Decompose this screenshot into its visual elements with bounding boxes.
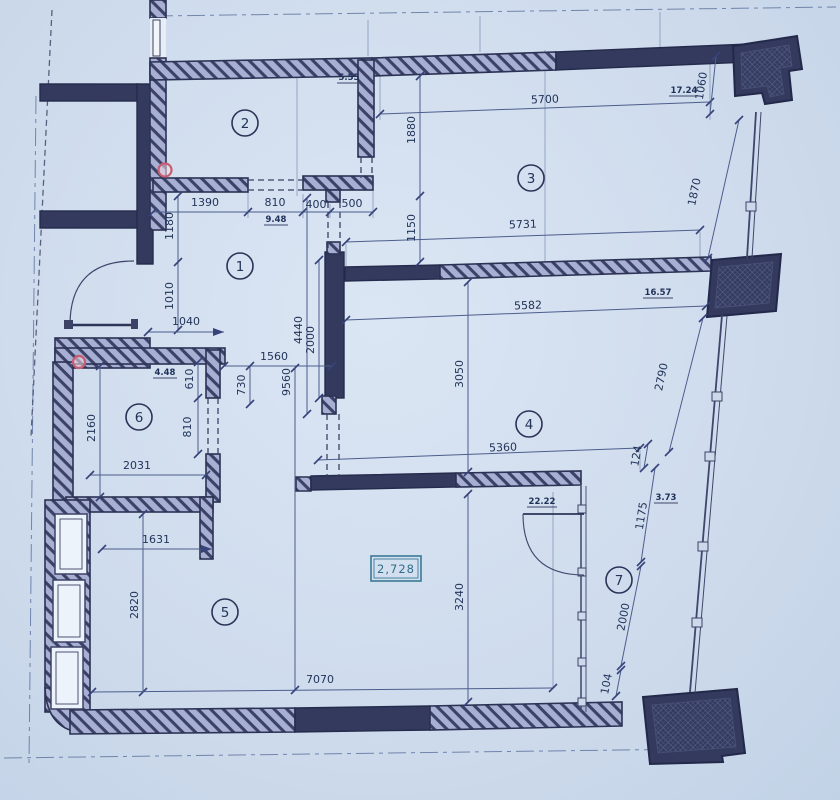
dim-9560: [291, 364, 299, 694]
room-number: 3: [527, 171, 536, 187]
dim-text: 5360: [489, 441, 517, 455]
room-number: 5: [221, 605, 230, 621]
room-number: 6: [135, 410, 144, 426]
elevation-value: 2,728: [377, 562, 415, 576]
unit-walls: [45, 0, 750, 734]
dim-text: 124: [628, 444, 644, 467]
dim-text: 9560: [280, 368, 293, 396]
area-label: 9.48: [266, 215, 287, 225]
dim-text: 1870: [685, 177, 704, 207]
area-label: 16.57: [645, 288, 672, 298]
mullion: [698, 542, 708, 551]
dim-text: 1390: [191, 196, 219, 209]
elevation-mark: 2,728: [371, 556, 421, 581]
dimension-texts: 1390 810 400 500 5700 5731 1880 1150 118…: [85, 71, 710, 695]
dim-text: 2820: [128, 591, 141, 619]
room-number: 4: [525, 417, 534, 433]
mullion: [712, 392, 722, 401]
glazed-partition: [578, 486, 586, 712]
dim-text: 2160: [85, 414, 98, 442]
central-pier: [325, 252, 344, 398]
dim-text: 2031: [123, 459, 151, 472]
entry-door: [64, 261, 138, 329]
area-label: 17.24: [671, 86, 698, 96]
dim-text: 3050: [453, 360, 466, 388]
dim-text: 400: [306, 198, 327, 211]
area-label: 4.48: [155, 368, 176, 378]
dim-text: 1150: [405, 214, 418, 242]
curtain-wall-glazing: [690, 112, 761, 693]
dim-text: 500: [342, 197, 363, 210]
red-marker: [159, 164, 172, 177]
dim-1631: [98, 545, 212, 553]
dim-5360: [314, 444, 644, 464]
floor-plan-page: 1390 810 400 500 5700 5731 1880 1150 118…: [0, 0, 840, 800]
windows-left-wall: [51, 514, 87, 709]
dim-text: 810: [181, 417, 194, 438]
dim-text: 5731: [509, 218, 537, 232]
mullion: [746, 202, 756, 211]
neighbour-walls: [40, 84, 153, 264]
dim-text: 1040: [172, 315, 200, 328]
dim-text: 104: [598, 672, 615, 695]
dim-4440: [303, 194, 311, 418]
dim-text: 1010: [163, 282, 176, 310]
area-label: 5.55: [339, 73, 360, 83]
neighbour-door-leaf: [153, 20, 160, 56]
red-marker: [73, 356, 85, 368]
dim-text: 5700: [531, 93, 559, 107]
dim-text: 1560: [260, 350, 288, 363]
room-number: 7: [615, 573, 624, 589]
area-label: 3.73: [656, 493, 677, 503]
dim-text: 2000: [304, 326, 317, 354]
room-number: 1: [236, 259, 245, 275]
dim-2031: [86, 471, 210, 479]
door-swing-arc: [70, 261, 134, 325]
dim-1040: [144, 328, 224, 336]
dim-text: 1880: [405, 116, 418, 144]
room-number: 2: [241, 116, 250, 132]
dim-text: 7070: [306, 673, 334, 686]
floor-plan-drawing: 1390 810 400 500 5700 5731 1880 1150 118…: [0, 0, 840, 800]
dim-text: 3240: [453, 583, 466, 611]
area-label: 22.22: [529, 497, 556, 507]
dim-104: [612, 666, 625, 700]
dim-text: 2000: [614, 602, 632, 632]
dim-2790: [665, 314, 707, 456]
dim-text: 5582: [514, 299, 542, 313]
dim-text: 2790: [652, 362, 671, 392]
room7-door: [523, 514, 584, 575]
mullion: [692, 618, 702, 627]
door-swing-arc: [523, 514, 584, 575]
dim-text: 1175: [633, 501, 650, 531]
area-labels: 5.55 9.48 17.24 16.57 4.48 22.22 3.73: [153, 73, 699, 507]
dim-text: 1180: [163, 212, 176, 240]
dim-text: 730: [235, 375, 248, 396]
dim-text: 810: [265, 196, 286, 209]
dim-text: 1631: [142, 533, 170, 546]
mullion: [705, 452, 715, 461]
dim-text: 610: [183, 369, 196, 390]
dim-1870: [704, 116, 743, 262]
